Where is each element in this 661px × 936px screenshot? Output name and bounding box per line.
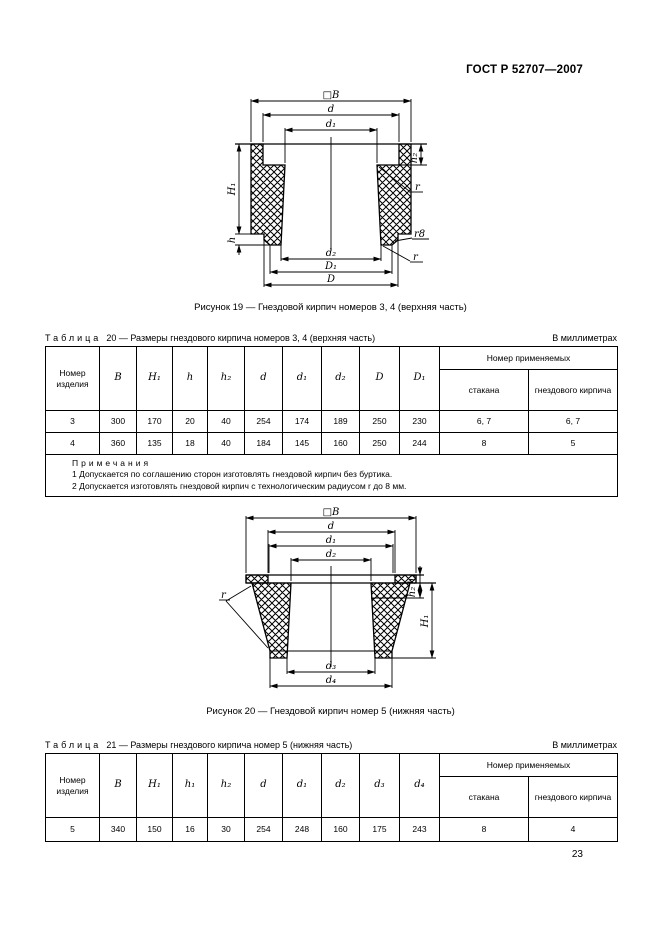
table-cell: 16 [173,818,208,842]
dim-label-H1: H₁ [420,615,431,629]
col-header-h2: h₂ [208,754,245,818]
dim-label-D: D [325,274,334,285]
dim-label-d3: d₃ [325,661,335,672]
table-cell: 6, 7 [529,411,618,433]
table-row: 5 340 150 16 30 254 248 160 175 243 8 4 [46,818,618,842]
col-header-product: Номер изделия [46,347,100,411]
col-header-h: h [173,347,208,411]
dim-label-d4: d₄ [325,675,335,686]
table-cell: 170 [137,411,173,433]
units-label: В миллиметрах [552,333,617,343]
table-cell: 175 [360,818,400,842]
table-cell: 4 [529,818,618,842]
col-header-h2: h₂ [208,347,245,411]
table-word: Таблица [45,740,101,750]
col-header-d2: d₂ [322,347,360,411]
dim-label-d: d [327,521,333,532]
radius-label-r-top: r [415,182,421,193]
table-cell: 243 [400,818,440,842]
table-cell: 189 [322,411,360,433]
dim-label-d1: d₁ [325,119,335,130]
note-2: 2 Допускается изготовлять гнездовой кирп… [72,481,611,492]
figure-20: □B d d₁ d₂ h₁ h₂ H₁ r d₃ d₄ [0,505,661,705]
figure-19-caption: Рисунок 19 — Гнездовой кирпич номеров 3,… [0,302,661,313]
table-cell: 250 [360,411,400,433]
table-20-title: Таблица 20 — Размеры гнездового кирпича … [45,333,375,343]
table-20: Номер изделия B H₁ h h₂ d d₁ d₂ D D₁ Ном… [45,346,618,497]
table-21-titleline: Таблица 21 — Размеры гнездового кирпича … [45,740,617,750]
table-title-text: — Размеры гнездового кирпича номеров 3, … [119,333,375,343]
table-number: 21 [106,740,116,750]
table-title-text: — Размеры гнездового кирпича номер 5 (ни… [119,740,352,750]
dim-label-d: d [327,104,333,115]
col-header-kirpich: гнездового кирпича [529,777,618,818]
table-cell: 300 [100,411,137,433]
table-cell: 5 [529,433,618,455]
document-page: ГОСТ Р 52707—2007 [0,0,661,936]
table-20-titleline: Таблица 20 — Размеры гнездового кирпича … [45,333,617,343]
table-cell: 360 [100,433,137,455]
table-row: 3 300 170 20 40 254 174 189 250 230 6, 7… [46,411,618,433]
table-cell: 40 [208,411,245,433]
col-header-kirpich: гнездового кирпича [529,370,618,411]
table-cell: 254 [245,411,283,433]
table-number: 20 [106,333,116,343]
table-cell: 40 [208,433,245,455]
col-header-D1: D₁ [400,347,440,411]
col-header-d4: d₄ [400,754,440,818]
col-group-header: Номер применяемых [440,347,618,370]
col-header-d: d [245,347,283,411]
col-header-D: D [360,347,400,411]
table-cell: 254 [245,818,283,842]
table-word: Таблица [45,333,101,343]
dim-label-B: □B [322,507,339,518]
table-cell: 174 [283,411,322,433]
standard-number: ГОСТ Р 52707—2007 [466,64,583,76]
table-cell: 5 [46,818,100,842]
hatched-wall-sections [252,583,424,658]
dim-label-h: h [227,237,238,243]
dim-label-B: □B [322,90,339,101]
col-header-d3: d₃ [360,754,400,818]
table-21: Номер изделия B H₁ h₁ h₂ d d₁ d₂ d₃ d₄ Н… [45,753,618,842]
col-header-d1: d₁ [283,754,322,818]
col-header-stakan: стакана [440,370,529,411]
page-number: 23 [572,849,583,860]
figure-20-caption: Рисунок 20 — Гнездовой кирпич номер 5 (н… [0,706,661,717]
col-header-B: B [100,347,137,411]
table-cell: 248 [283,818,322,842]
radius-label-r: r [221,590,227,601]
dim-label-h2: h₂ [407,587,418,597]
dim-label-d1: d₁ [325,535,335,546]
table-cell: 160 [322,433,360,455]
dim-label-D1: D₁ [323,261,336,272]
col-header-d1: d₁ [283,347,322,411]
table-cell: 145 [283,433,322,455]
table-cell: 135 [137,433,173,455]
table-cell: 6, 7 [440,411,529,433]
table-cell: 340 [100,818,137,842]
figure-19-drawing: □B d d₁ h₂ H₁ h d₂ D₁ D r r8 r [211,88,451,293]
col-group-header: Номер применяемых [440,754,618,777]
table-cell: 184 [245,433,283,455]
notes-label: Примечания [72,458,611,469]
table-cell: 8 [440,433,529,455]
table-cell: 150 [137,818,173,842]
table-cell: 20 [173,411,208,433]
table-row: 4 360 135 18 40 184 145 160 250 244 8 5 [46,433,618,455]
table-cell: 3 [46,411,100,433]
col-header-d: d [245,754,283,818]
col-header-B: B [100,754,137,818]
radius-label-r8: r8 [414,229,425,240]
table-21-block: Таблица 21 — Размеры гнездового кирпича … [45,740,617,842]
table-cell: 230 [400,411,440,433]
figure-20-drawing: □B d d₁ d₂ h₁ h₂ H₁ r d₃ d₄ [216,505,446,700]
dim-label-d2: d₂ [325,549,335,560]
figure-19: □B d d₁ h₂ H₁ h d₂ D₁ D r r8 r [0,88,661,298]
table-cell: 30 [208,818,245,842]
col-header-h1: h₁ [173,754,208,818]
table-notes: Примечания 1 Допускается по соглашению с… [46,455,618,497]
units-label: В миллиметрах [552,740,617,750]
dim-label-h1: h₁ [407,574,418,584]
table-cell: 160 [322,818,360,842]
col-header-stakan: стакана [440,777,529,818]
dim-label-d2: d₂ [325,248,335,259]
col-header-H1: H₁ [137,347,173,411]
table-cell: 18 [173,433,208,455]
radius-label-r-bottom: r [413,252,419,263]
table-21-title: Таблица 21 — Размеры гнездового кирпича … [45,740,352,750]
note-1: 1 Допускается по соглашению сторон изгот… [72,469,611,480]
table-cell: 8 [440,818,529,842]
table-cell: 4 [46,433,100,455]
table-cell: 250 [360,433,400,455]
dim-label-H1: H₁ [227,183,238,197]
dim-label-h2: h₂ [409,153,420,163]
col-header-product: Номер изделия [46,754,100,818]
col-header-d2: d₂ [322,754,360,818]
table-20-block: Таблица 20 — Размеры гнездового кирпича … [45,333,617,497]
table-cell: 244 [400,433,440,455]
col-header-H1: H₁ [137,754,173,818]
